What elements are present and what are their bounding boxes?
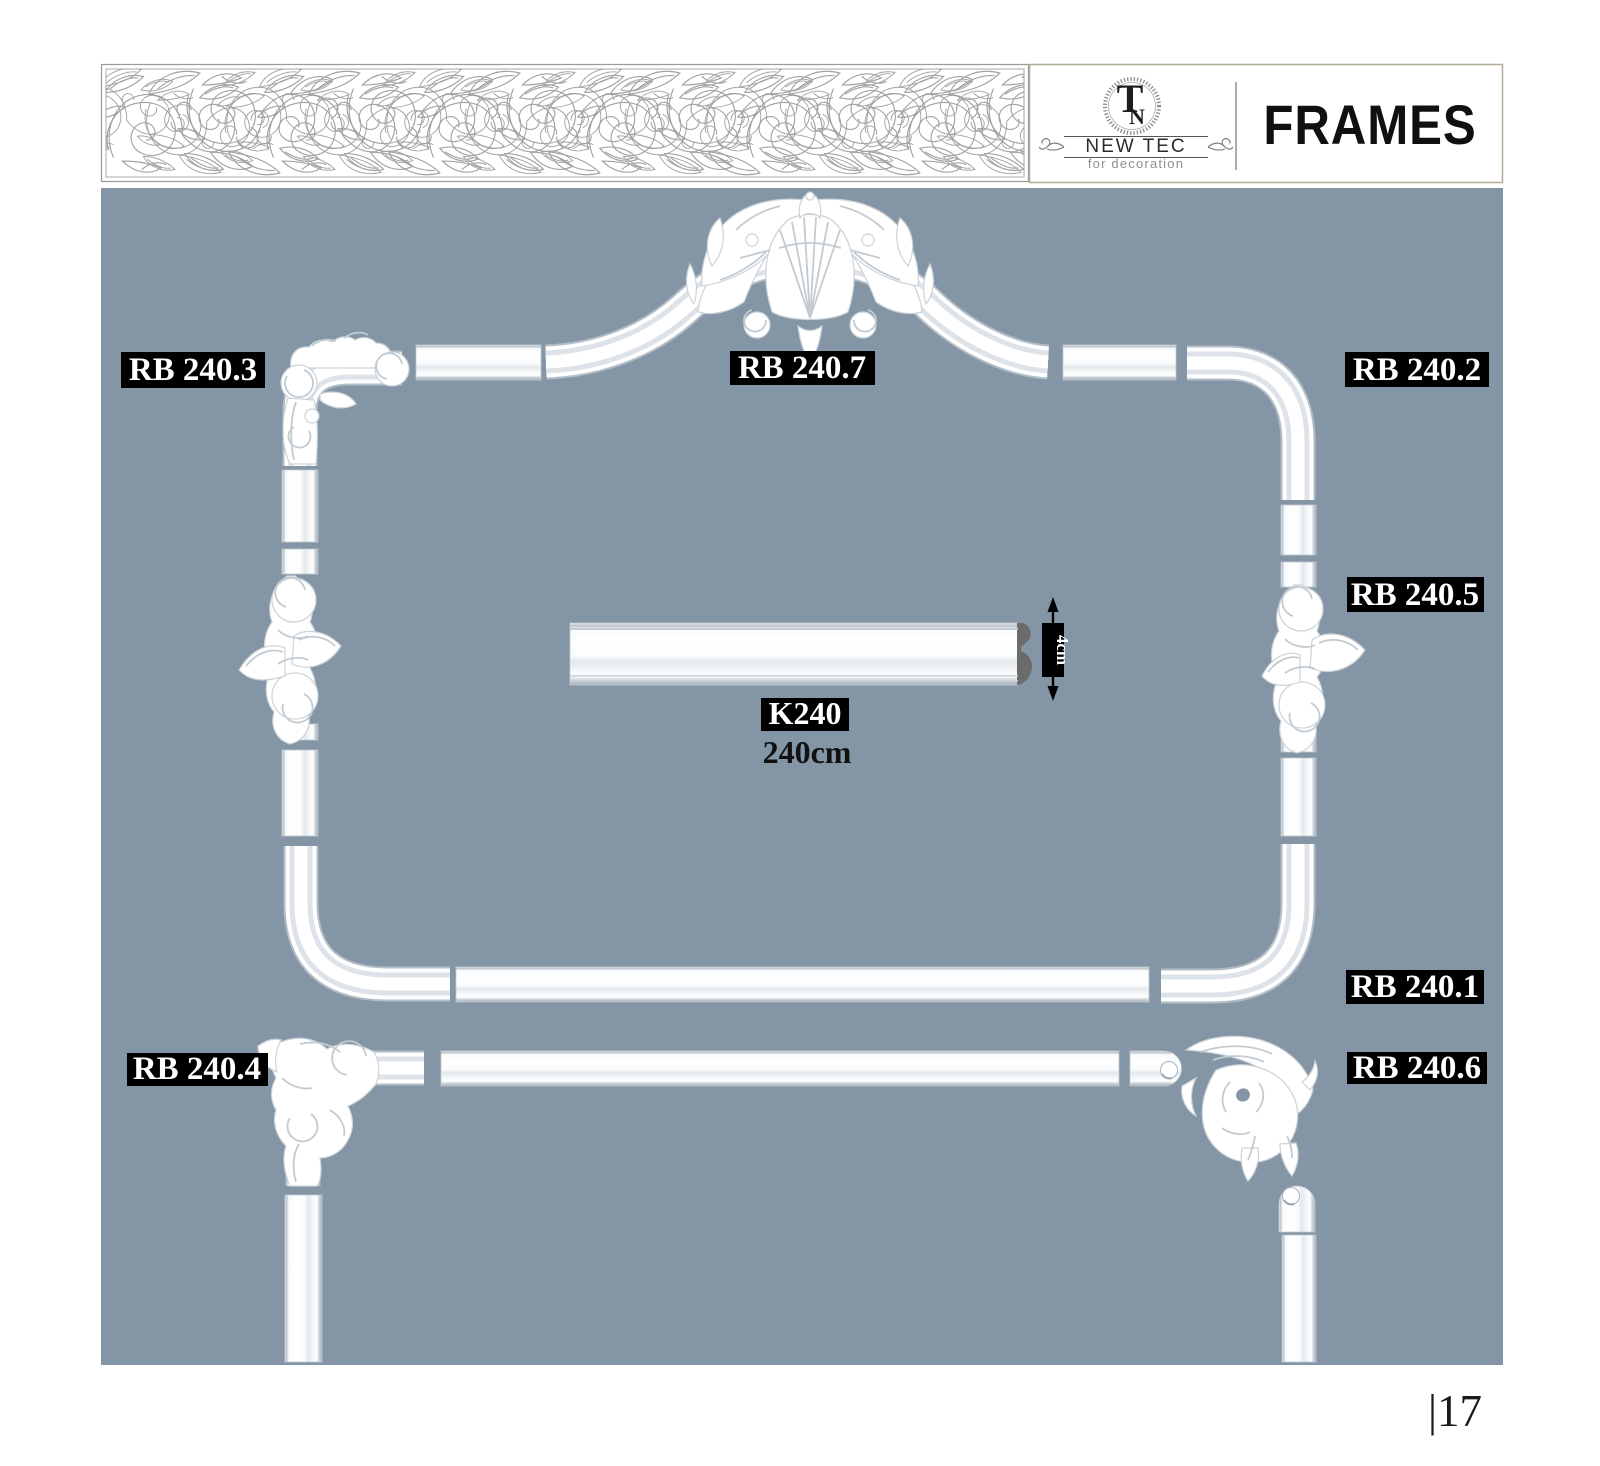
svg-text:RB 240.1: RB 240.1 [1351, 969, 1479, 1005]
svg-text:RB 240.4: RB 240.4 [133, 1051, 261, 1087]
svg-text:RB 240.5: RB 240.5 [1351, 577, 1479, 613]
svg-text:N: N [1129, 104, 1145, 129]
svg-text:for decoration: for decoration [1088, 156, 1184, 171]
svg-text:K240: K240 [769, 695, 842, 731]
svg-text:240cm: 240cm [763, 734, 852, 770]
svg-text:4cm: 4cm [1053, 635, 1072, 665]
svg-text:RB 240.7: RB 240.7 [738, 350, 866, 386]
svg-text:FRAMES: FRAMES [1263, 94, 1476, 157]
svg-text:RB 240.6: RB 240.6 [1353, 1050, 1481, 1086]
svg-text:RB 240.3: RB 240.3 [129, 352, 257, 388]
svg-text:|17: |17 [1428, 1386, 1482, 1436]
svg-text:NEW TEC: NEW TEC [1085, 136, 1186, 157]
svg-text:RB 240.2: RB 240.2 [1353, 352, 1481, 388]
